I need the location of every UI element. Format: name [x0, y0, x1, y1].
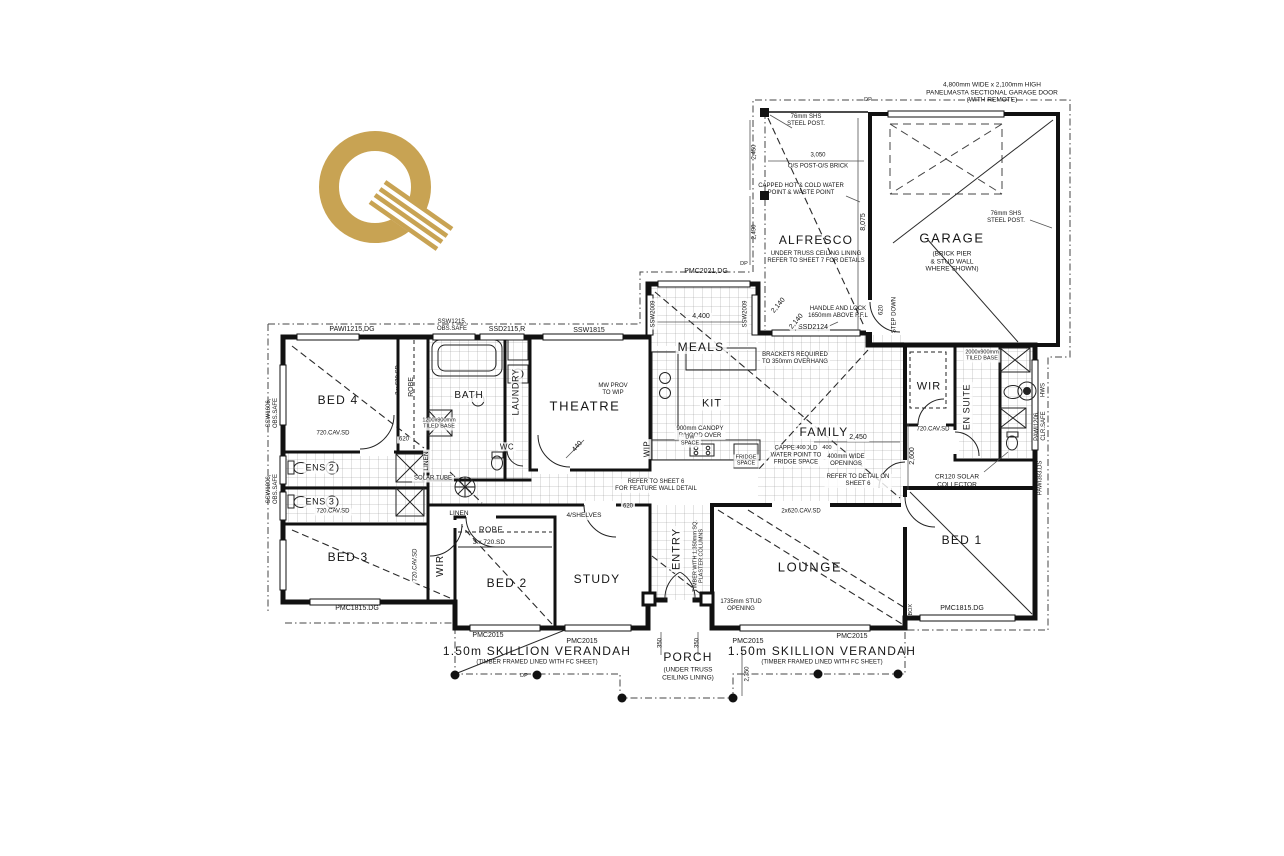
floor-plan-drawing [0, 0, 1284, 856]
dim-620: 620 [397, 436, 411, 443]
dim-2450-alfresco: 2,450 [751, 144, 758, 159]
steel-post-note-garage: 76mm SHS STEEL POST. [987, 211, 1025, 225]
steel-post-note-alfresco: 76mm SHS STEEL POST. [787, 114, 825, 128]
dim-2450-family: 2,450 [847, 434, 869, 442]
room-label-wir-master: WIR [917, 381, 941, 394]
room-label-study: STUDY [574, 572, 621, 586]
code-ssw1606: SSW1606, OBS.SAFE [266, 398, 280, 428]
verandah-post [451, 671, 460, 680]
code-pmc2015: PMC2015 [836, 633, 867, 641]
room-label-garage: GARAGE [919, 230, 984, 245]
room-label-laundry: LAUNDRY [511, 366, 522, 417]
code-pmc2021: PMC2021,DG [684, 268, 728, 276]
room-label-lounge: LOUNGE [778, 559, 843, 574]
alfresco-note: UNDER TRUSS CEILING LINING REFER TO SHEE… [767, 251, 864, 265]
porch-column [643, 593, 655, 605]
robe-bed2-label: ROBE [479, 525, 503, 534]
code-ssw2009-left: SSW2009 [650, 298, 657, 329]
q-logo [329, 141, 452, 249]
dim-2490: 2,490 [751, 224, 758, 239]
dim-2350: 2,350 [744, 666, 751, 681]
code-pmc2015: PMC2015 [566, 638, 597, 646]
code-bath-window: SSW1215, OBS.SAFE [437, 319, 467, 333]
room-label-wip: WIP [642, 439, 651, 459]
code-cav620x2-lounge: 2x620.CAV.SD [779, 508, 822, 515]
code-cav720-bed4: 720.CAV.SD [314, 430, 351, 437]
dp-label: DP [864, 97, 872, 103]
code-cav720-wir: 720.CAV.SD [412, 546, 419, 583]
mw-prov-note: MW PROV TO WIP [598, 383, 627, 397]
porch-post [729, 694, 738, 703]
room-label-bath: BATH [452, 390, 485, 402]
dim-350: 350 [657, 638, 664, 648]
room-label-entry: ENTRY [671, 526, 684, 572]
robe-bed2-doors: 3 x 720.SD [473, 539, 505, 547]
mbox-label: MBOX [908, 604, 914, 620]
dim-3050: 3,050 [810, 152, 825, 159]
code-ssw1815: SSW1815 [573, 327, 605, 335]
room-label-family: FAMILY [798, 425, 851, 439]
garage-note: (BRICK PIER & STUD WALL WHERE SHOWN) [925, 251, 978, 274]
step-down-note: STEP DOWN [891, 297, 898, 333]
code-pawi393: PAWI393.DS [1037, 461, 1044, 496]
porch-column [701, 593, 713, 605]
room-label-wc: WC [498, 442, 516, 451]
code-pmc1815-bed1: PMC1815.DG [940, 605, 984, 613]
porch-post [618, 694, 627, 703]
code-pmc2015: PMC2015 [472, 632, 503, 640]
room-label-theatre: THEATRE [550, 398, 621, 413]
hws-label: HWS [1040, 383, 1047, 397]
robe-bed4-label: ROBE [408, 377, 416, 397]
room-label-bed3: BED 3 [328, 550, 369, 564]
feature-wall-note: REFER TO SHEET 6 FOR FEATURE WALL DETAIL [613, 479, 699, 493]
room-label-ens3: ENS 3 [303, 497, 336, 508]
room-label-bed2: BED 2 [487, 576, 528, 590]
room-label-wir-bed3: WIR [435, 555, 447, 577]
code-ssd2115: SSD2115,R [489, 326, 525, 334]
code-pawi1215: PAWI1215,DG [329, 326, 374, 334]
code-pawi1206: PAWI1206, CLR.SAFE [1034, 411, 1048, 441]
code-pmc1815-bed3: PMC1815.DG [335, 605, 379, 613]
dp-label: DP [740, 261, 748, 267]
robe-bed4-doors: 3 x 620.SD [395, 365, 402, 395]
verandah-left-label: 1.50m SKILLION VERANDAH [443, 644, 631, 658]
code-pmc2015: PMC2015 [732, 638, 763, 646]
code-cav720-wir-master: 720.CAV.SD [914, 426, 951, 433]
room-label-bed1: BED 1 [942, 533, 983, 547]
solar-collector-note: CR120 SOLAR COLLECTOR [935, 473, 979, 488]
room-label-meals: MEALS [676, 340, 727, 354]
dw-space-label: DW SPACE [679, 435, 701, 448]
floor-plan-page: BED 4 BED 3 BED 2 BED 1 THEATRE MEALS KI… [0, 0, 1284, 856]
study-shelves-label: 4/SHELVES [565, 512, 604, 520]
verandah-right-note: (TIMBER FRAMED LINED WITH FC SHEET) [761, 659, 882, 666]
os-post-note: O/S POST-O/S BRICK [788, 163, 848, 170]
dim-400: 400 [794, 445, 807, 451]
room-label-porch: PORCH [663, 650, 712, 664]
capped-hot-cold-note: CAPPED HOT & COLD WATER POINT & WASTE PO… [758, 183, 844, 197]
code-ssw1006: SSW1006, OBS.SAFE [266, 474, 280, 504]
dp-label: DP [520, 673, 528, 679]
dim-350: 350 [694, 638, 701, 648]
dim-2600: 2,600 [909, 445, 917, 467]
fridge-space-label: FRIDGE SPACE [734, 455, 759, 468]
handle-lock-note: HANDLE AND LOCK 1650mm ABOVE F.F.L [808, 306, 868, 320]
room-label-alfresco: ALFRESCO [779, 233, 853, 247]
brackets-note: BRACKETS REQUIRED TO 350mm OVERHANG [760, 352, 830, 366]
verandah-left-note: (TIMBER FRAMED LINED WITH FC SHEET) [476, 659, 597, 666]
refer-detail-note: REFER TO DETAIL ON SHEET 6 [825, 474, 892, 488]
solar-tube-note: SOLAR TUBE [412, 475, 454, 482]
verandah-post [894, 670, 903, 679]
room-label-ensuite: EN SUITE [962, 382, 973, 432]
stud-opening-note: 1735mm STUD OPENING [718, 599, 763, 613]
garage-door-note: 4,800mm WIDE x 2,100mm HIGH PANELMASTA S… [926, 82, 1058, 105]
dim-400: 400 [820, 445, 833, 451]
linen-bed2-label: LINEN [449, 510, 468, 518]
openings-note: 400mm WIDE OPENINGS [825, 454, 866, 468]
code-ssw2009-right: SSW2009 [742, 298, 749, 329]
verandah-post [814, 670, 823, 679]
room-label-bed4: BED 4 [318, 393, 359, 407]
dim-620: 620 [621, 503, 635, 510]
room-label-ens2: ENS 2 [303, 463, 336, 474]
dim-4400: 4,400 [690, 313, 712, 321]
linen-hall-label: LINEN [423, 449, 431, 472]
room-label-kitchen: KIT [700, 398, 724, 411]
dim-8075: 8,075 [860, 213, 868, 231]
bath-tiled-base-note: 1200x900mm TILED BASE [420, 418, 457, 431]
code-ssd2124: SSD2124 [796, 324, 830, 332]
code-cav720-ens3: 720.CAV.SD [314, 508, 351, 515]
verandah-post [533, 671, 542, 680]
dim-620-garage: 620 [878, 305, 885, 315]
ensuite-tiled-base-note: 2000x900mm TILED BASE [963, 350, 1000, 363]
plaster-columns-note: TIMBER WITH 1,350mm SQ. PLASTER COLUMNS [693, 520, 706, 592]
porch-note: (UNDER TRUSS CEILING LINING) [662, 666, 714, 681]
